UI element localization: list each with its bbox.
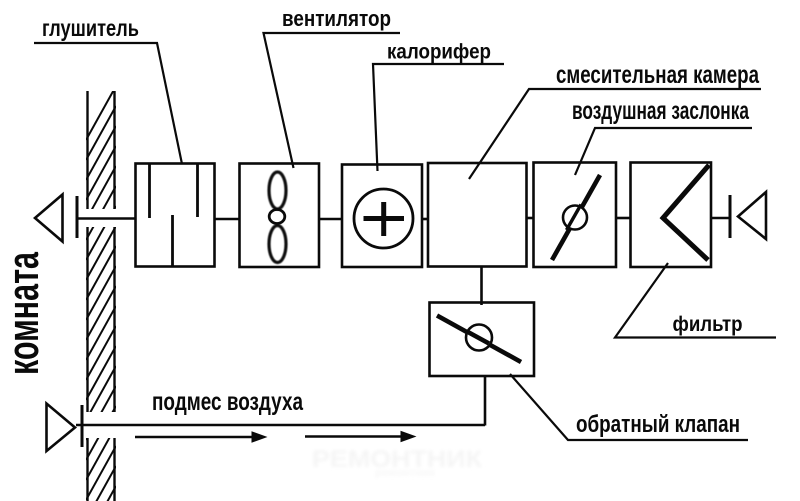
svg-text:обратный клапан: обратный клапан [576,411,740,438]
svg-text:калорифер: калорифер [387,41,491,64]
svg-text:смесительная камера: смесительная камера [556,61,760,89]
svg-text:глушитель: глушитель [42,15,139,41]
svg-text:ремонтник: ремонтник [375,467,435,479]
svg-text:подмес воздуха: подмес воздуха [152,388,304,416]
svg-text:комната: комната [0,252,48,375]
svg-text:фильтр: фильтр [673,313,743,336]
svg-text:вентилятор: вентилятор [282,6,391,31]
svg-text:воздушная заслонка: воздушная заслонка [572,97,750,125]
